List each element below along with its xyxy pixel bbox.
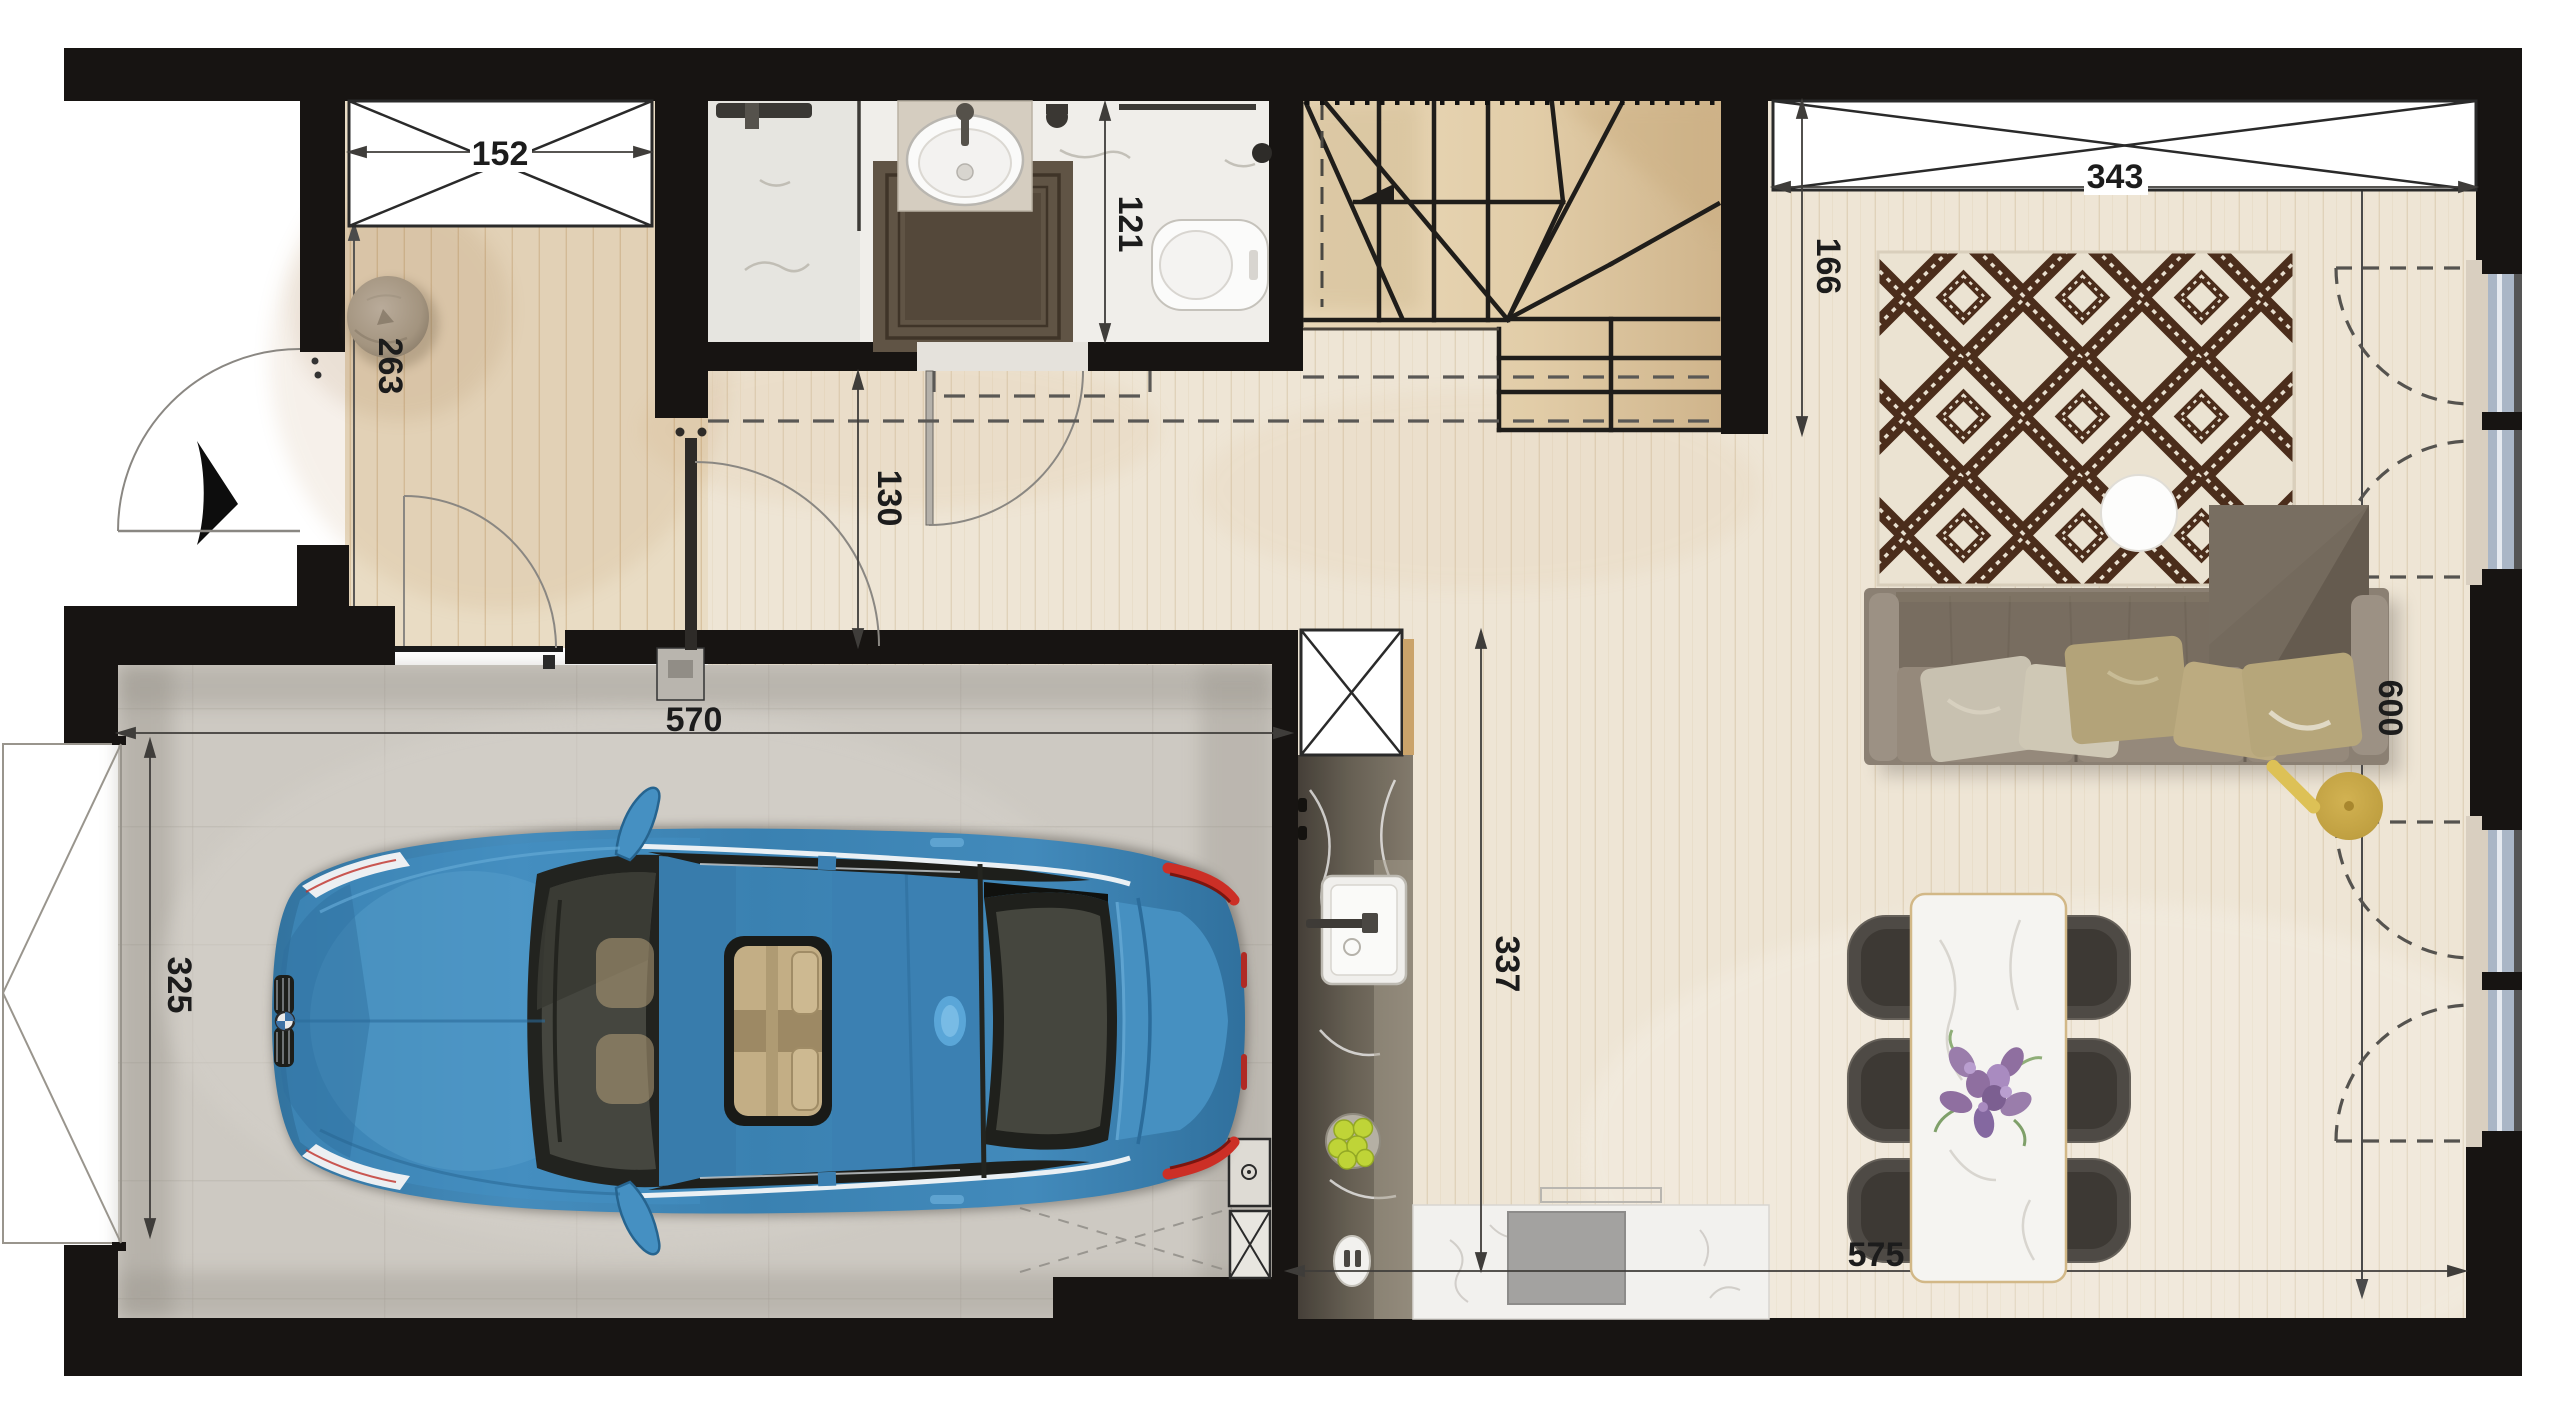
svg-text:166: 166 — [1809, 238, 1847, 295]
svg-text:575: 575 — [1848, 1236, 1905, 1274]
svg-text:600: 600 — [2371, 680, 2409, 737]
svg-text:343: 343 — [2087, 158, 2144, 196]
svg-text:570: 570 — [666, 701, 723, 739]
svg-text:325: 325 — [160, 957, 198, 1014]
svg-text:152: 152 — [472, 135, 529, 173]
svg-text:130: 130 — [870, 470, 908, 527]
svg-text:121: 121 — [1111, 196, 1149, 253]
svg-text:263: 263 — [371, 338, 409, 395]
svg-text:337: 337 — [1488, 936, 1526, 993]
